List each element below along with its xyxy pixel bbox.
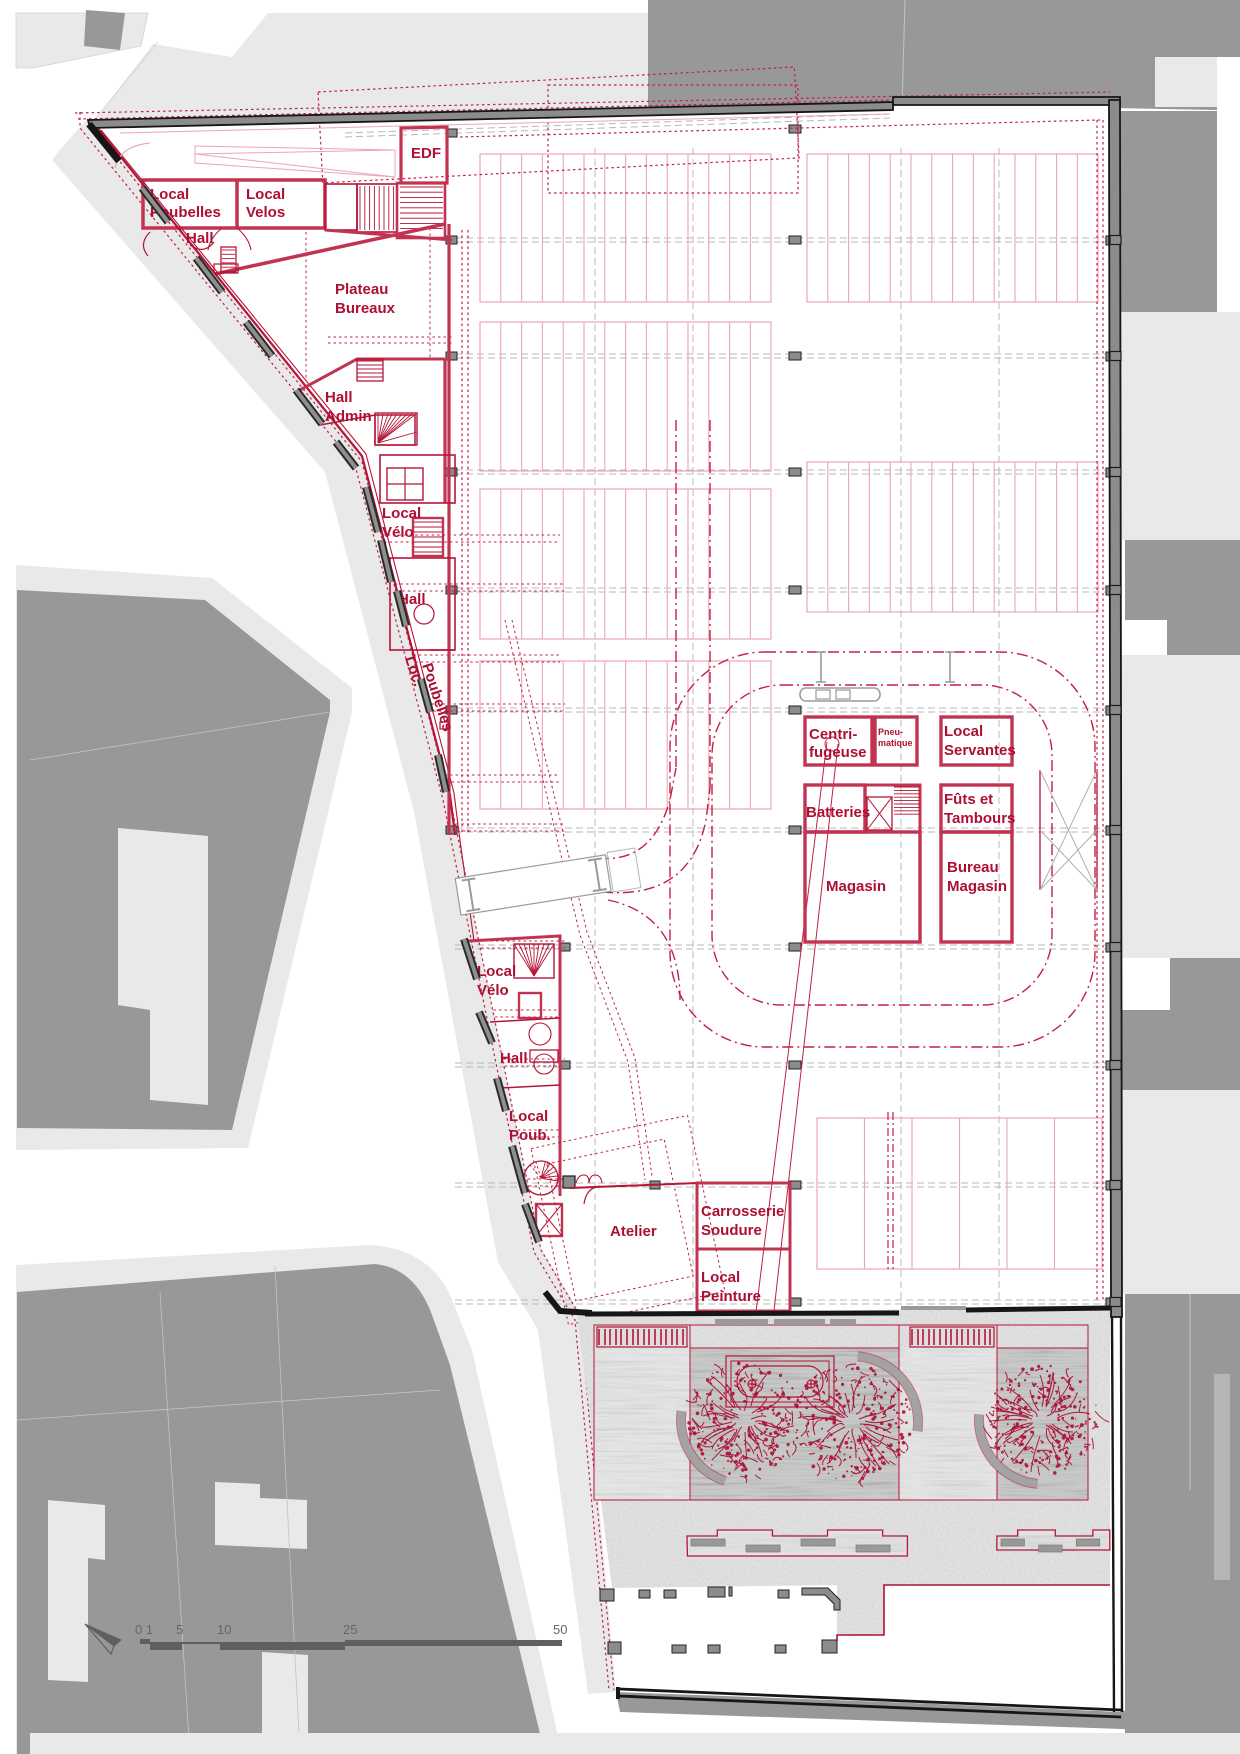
svg-text:Admin: Admin (325, 408, 372, 425)
svg-text:EDF: EDF (411, 145, 441, 162)
svg-text:Local: Local (477, 963, 516, 980)
svg-text:Pneu-: Pneu- (878, 727, 903, 737)
svg-text:Magasin: Magasin (947, 878, 1007, 895)
svg-text:Centri-: Centri- (809, 726, 857, 743)
svg-text:Local: Local (382, 505, 421, 522)
svg-text:25: 25 (343, 1622, 357, 1637)
svg-text:Bureaux: Bureaux (335, 300, 396, 317)
svg-text:Local: Local (246, 186, 285, 203)
svg-text:Local: Local (509, 1108, 548, 1125)
svg-text:Vélo: Vélo (382, 524, 414, 541)
svg-text:Hall: Hall (186, 230, 214, 247)
svg-text:5: 5 (176, 1622, 183, 1637)
svg-text:Poub.: Poub. (509, 1127, 551, 1144)
svg-text:0 1: 0 1 (135, 1622, 153, 1637)
svg-text:Magasin: Magasin (826, 878, 886, 895)
svg-text:matique: matique (878, 738, 913, 748)
svg-text:Peinture: Peinture (701, 1288, 761, 1305)
svg-text:Plateau: Plateau (335, 281, 388, 298)
svg-text:Local: Local (944, 723, 983, 740)
svg-text:Soudure: Soudure (701, 1222, 762, 1239)
svg-text:Tambours: Tambours (944, 810, 1015, 827)
svg-text:Batteries: Batteries (806, 804, 870, 821)
svg-text:Bureau: Bureau (947, 859, 999, 876)
svg-text:Hall: Hall (500, 1050, 528, 1067)
svg-text:Vélo: Vélo (477, 982, 509, 999)
svg-text:Servantes: Servantes (944, 742, 1016, 759)
svg-text:50: 50 (553, 1622, 567, 1637)
svg-text:Velos: Velos (246, 204, 285, 221)
svg-text:Hall: Hall (325, 389, 353, 406)
svg-text:Fûts et: Fûts et (944, 791, 993, 808)
svg-text:fugeuse: fugeuse (809, 744, 867, 761)
svg-text:Carrosserie: Carrosserie (701, 1203, 784, 1220)
svg-text:Local: Local (701, 1269, 740, 1286)
svg-text:Atelier: Atelier (610, 1223, 657, 1240)
svg-text:10: 10 (217, 1622, 231, 1637)
